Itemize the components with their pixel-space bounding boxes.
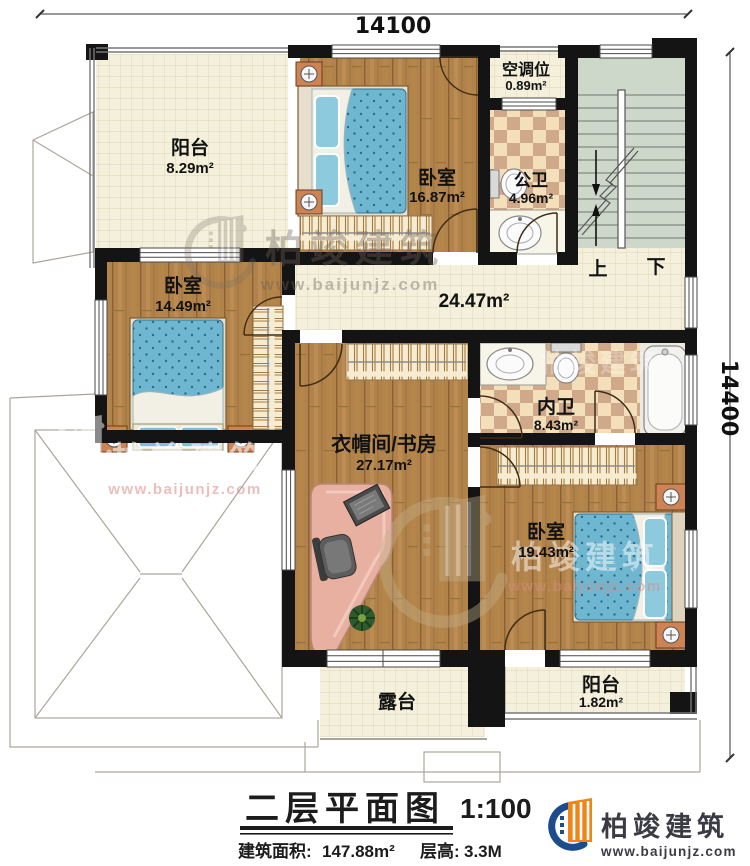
area-balcony-bottom: 1.82m²: [579, 694, 624, 710]
label-balcony-bottom: 阳台: [582, 673, 620, 696]
area-balcony-tl: 8.29m²: [166, 160, 214, 177]
label-cloakroom-study: 衣帽间/书房: [331, 432, 437, 456]
sink-icon: [480, 343, 546, 385]
brand-logo: 柏竣建筑 www.baijunjz.com: [552, 798, 737, 859]
wardrobe: [497, 447, 637, 485]
label-bedroom-br: 卧室: [527, 520, 565, 543]
window: [600, 45, 652, 58]
plan-scale: 1:100: [460, 793, 532, 824]
floorplan-page: 柏竣建筑 www.baijunjz.com 柏竣建筑 www.baijunjz.…: [0, 0, 750, 866]
title-block: 二层平面图 1:100 建筑面积: 147.88m² 层高: 3.3M: [238, 790, 532, 861]
area-bedroom-top: 16.87m²: [409, 189, 465, 206]
window: [332, 45, 440, 58]
watermark-brand: 柏竣建筑: [540, 348, 660, 378]
window: [685, 277, 697, 328]
window: [95, 300, 107, 395]
label-stairs-down: 下: [646, 257, 665, 278]
brand-url: www.baijunjz.com: [600, 844, 737, 859]
label-bedroom-left: 卧室: [164, 274, 202, 297]
floor-height-label: 层高:: [420, 841, 460, 861]
nightstand: [656, 622, 686, 648]
dimension-right: 14400: [716, 360, 741, 437]
window: [685, 530, 697, 608]
plant-icon: [349, 605, 375, 631]
nightstand: [296, 190, 322, 214]
watermark-url: www.baijunjz.com: [260, 275, 440, 294]
built-area-value: 147.88m²: [322, 842, 395, 861]
label-balcony-tl: 阳台: [171, 136, 209, 159]
sink-icon: [488, 210, 566, 254]
area-bedroom-br: 19.43m²: [518, 544, 574, 561]
window: [685, 355, 697, 425]
built-area-label: 建筑面积:: [238, 841, 312, 861]
wardrobe: [346, 344, 468, 380]
label-bedroom-top: 卧室: [418, 166, 456, 189]
label-stairs-up: 上: [588, 258, 607, 280]
area-private-bath: 8.43m²: [534, 417, 579, 433]
sliding-door: [327, 650, 440, 667]
area-corridor: 24.47m²: [439, 291, 510, 312]
nightstand: [296, 62, 322, 86]
watermark-url: www.baijunjz.com: [107, 481, 261, 498]
watermark-url: www.baijunjz.com: [507, 578, 661, 595]
nightstand: [656, 484, 686, 510]
wardrobe: [253, 306, 283, 430]
area-cloakroom-study: 27.17m²: [356, 457, 412, 474]
window: [282, 470, 295, 570]
area-ac-bay: 0.89m²: [505, 78, 547, 93]
title-underline: [240, 826, 453, 830]
plan-title: 二层平面图: [245, 790, 445, 828]
dimension-top: 14100: [355, 14, 432, 39]
label-private-bath: 内卫: [537, 395, 575, 418]
label-ac-bay: 空调位: [502, 60, 550, 79]
label-public-bath: 公卫: [514, 171, 548, 190]
window: [502, 98, 556, 110]
area-public-bath: 4.96m²: [509, 190, 554, 206]
area-bedroom-left: 14.49m²: [155, 298, 211, 315]
floorplan-drawing: 柏竣建筑 www.baijunjz.com 柏竣建筑 www.baijunjz.…: [0, 0, 750, 866]
floor-height-value: 3.3M: [464, 842, 502, 861]
floor-stairwell: [578, 58, 685, 248]
watermark-brand: 柏竣建筑: [265, 229, 445, 271]
brand-logo-icon: [552, 798, 592, 847]
watermark-logo-icon: [57, 415, 109, 471]
label-terrace: 露台: [378, 690, 416, 713]
brand-name: 柏竣建筑: [601, 811, 729, 842]
window: [560, 650, 650, 667]
watermark-brand: 柏竣建筑: [112, 440, 268, 477]
